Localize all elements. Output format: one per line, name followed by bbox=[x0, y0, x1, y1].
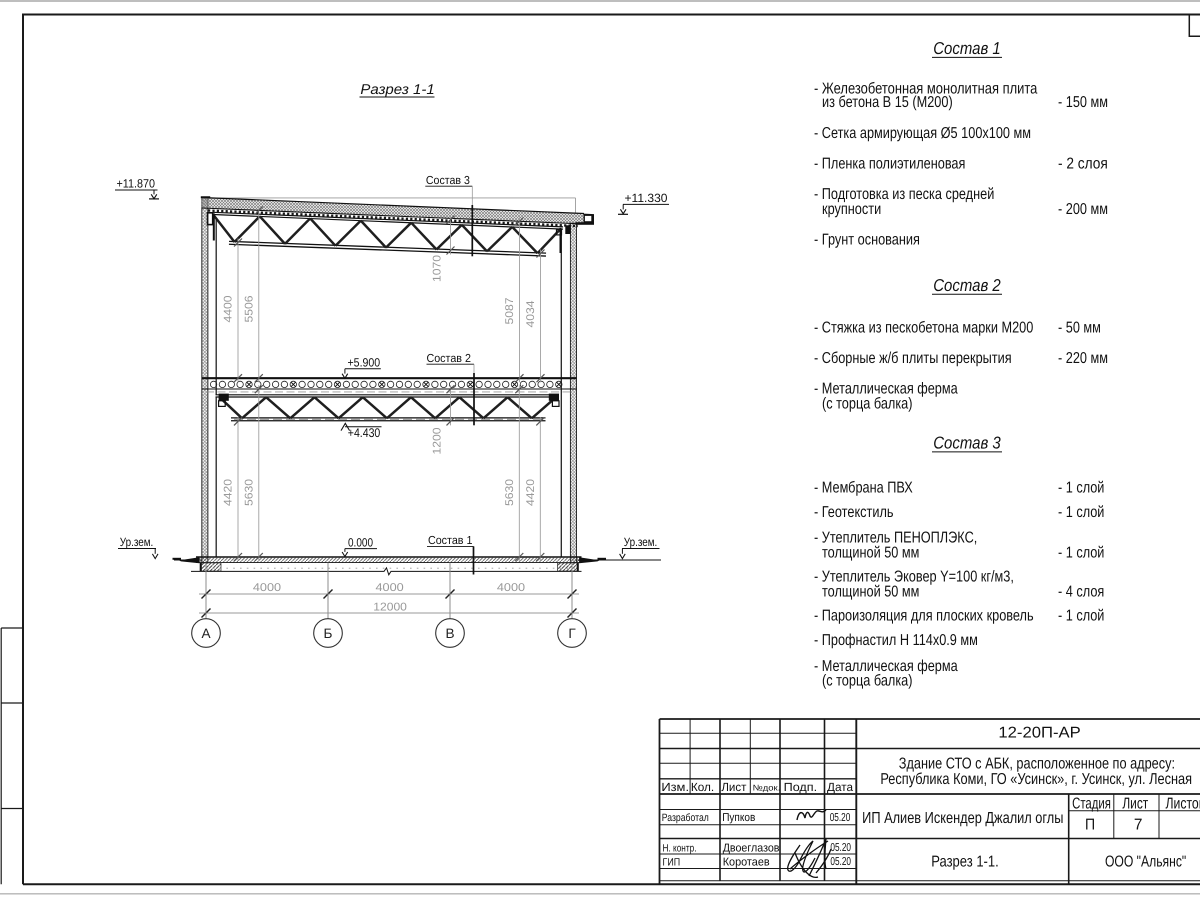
svg-text:4000: 4000 bbox=[497, 582, 525, 594]
svg-text:12-20П-АР: 12-20П-АР bbox=[998, 725, 1080, 742]
svg-text:Состав 1: Состав 1 bbox=[933, 38, 1001, 58]
svg-text:- 4 слоя: - 4 слоя bbox=[1058, 583, 1104, 600]
svg-text:- Пароизоляция для плоских кро: - Пароизоляция для плоских кровель bbox=[814, 608, 1034, 625]
svg-text:- Профнастил Н 114х0.9 мм: - Профнастил Н 114х0.9 мм bbox=[814, 632, 978, 649]
svg-text:+11.330: +11.330 bbox=[625, 191, 668, 205]
svg-text:5630: 5630 bbox=[504, 479, 516, 506]
svg-text:Б: Б bbox=[324, 626, 333, 641]
svg-text:- Пленка полиэтиленовая: - Пленка полиэтиленовая bbox=[814, 155, 965, 172]
svg-text:Состав 3: Состав 3 bbox=[426, 174, 470, 187]
svg-text:Состав 2: Состав 2 bbox=[426, 352, 471, 365]
svg-text:Изм.: Изм. bbox=[661, 780, 689, 794]
svg-text:Н. контр.: Н. контр. bbox=[663, 843, 697, 855]
svg-text:Кол.: Кол. bbox=[691, 780, 714, 794]
svg-text:5087: 5087 bbox=[504, 298, 516, 325]
svg-text:(с торца балка): (с торца балка) bbox=[822, 673, 913, 690]
svg-text:- Стяжка из пескобетона марки: - Стяжка из пескобетона марки М200 bbox=[814, 320, 1033, 337]
svg-text:Республика Коми, ГО «Усинск»,: Республика Коми, ГО «Усинск», г. Усинск,… bbox=[880, 771, 1192, 788]
svg-text:(с торца балка): (с торца балка) bbox=[822, 395, 913, 412]
svg-text:Двоеглазов: Двоеглазов bbox=[723, 843, 780, 855]
svg-text:А: А bbox=[201, 626, 211, 641]
svg-text:Дата: Дата bbox=[827, 780, 853, 794]
svg-text:толщиной 50 мм: толщиной 50 мм bbox=[822, 583, 919, 600]
svg-text:Пупков: Пупков bbox=[722, 812, 755, 824]
svg-text:5506: 5506 bbox=[243, 296, 255, 323]
svg-text:+4.430: +4.430 bbox=[348, 426, 381, 440]
svg-text:- 2 слоя: - 2 слоя bbox=[1058, 155, 1108, 172]
svg-text:- 200 мм: - 200 мм bbox=[1058, 201, 1108, 218]
svg-text:+11.870: +11.870 bbox=[117, 177, 156, 191]
svg-text:05.20: 05.20 bbox=[830, 856, 851, 868]
svg-text:0.000: 0.000 bbox=[348, 535, 373, 549]
svg-text:Подп.: Подп. bbox=[784, 780, 818, 794]
svg-text:толщиной 50 мм: толщиной 50 мм bbox=[822, 544, 919, 561]
svg-text:П: П bbox=[1085, 817, 1095, 834]
svg-text:Коротаев: Коротаев bbox=[723, 857, 770, 869]
svg-text:- Геотекстиль: - Геотекстиль bbox=[814, 504, 894, 521]
svg-text:- Мембрана ПВХ: - Мембрана ПВХ bbox=[814, 480, 913, 497]
svg-text:4000: 4000 bbox=[253, 582, 281, 594]
svg-text:Лист: Лист bbox=[1122, 796, 1148, 813]
svg-text:Разрез 1-1.: Разрез 1-1. bbox=[931, 854, 999, 871]
svg-text:- 1 слой: - 1 слой bbox=[1058, 504, 1104, 521]
svg-text:Стадия: Стадия bbox=[1072, 796, 1111, 813]
svg-text:7: 7 bbox=[1134, 817, 1143, 834]
svg-text:Состав 3: Состав 3 bbox=[933, 433, 1001, 453]
svg-text:из бетона В 15 (М200): из бетона В 15 (М200) bbox=[822, 94, 953, 111]
svg-text:Ур.зем.: Ур.зем. bbox=[624, 535, 658, 549]
svg-text:ГИП: ГИП bbox=[663, 857, 681, 869]
svg-text:- 150 мм: - 150 мм bbox=[1058, 94, 1108, 111]
svg-text:Разрез 1-1: Разрез 1-1 bbox=[360, 82, 434, 98]
svg-text:- Сетка армирующая Ø5 100х100: - Сетка армирующая Ø5 100х100 мм bbox=[814, 125, 1031, 142]
svg-text:- 1 слой: - 1 слой bbox=[1058, 480, 1104, 497]
svg-text:4000: 4000 bbox=[376, 582, 404, 594]
svg-text:1070: 1070 bbox=[432, 255, 444, 282]
svg-text:4400: 4400 bbox=[223, 296, 235, 323]
svg-text:1200: 1200 bbox=[432, 428, 444, 455]
svg-text:Листов: Листов bbox=[1166, 796, 1200, 813]
svg-text:5630: 5630 bbox=[243, 479, 255, 506]
svg-text:4420: 4420 bbox=[525, 479, 537, 506]
svg-text:ООО "Альянс": ООО "Альянс" bbox=[1105, 854, 1186, 871]
svg-text:Разработал: Разработал bbox=[662, 812, 709, 824]
svg-text:Ур.зем.: Ур.зем. bbox=[120, 535, 154, 549]
svg-text:№док.: №док. bbox=[753, 783, 781, 793]
svg-text:12000: 12000 bbox=[373, 601, 407, 613]
svg-text:05.20: 05.20 bbox=[830, 812, 851, 824]
svg-text:05.20: 05.20 bbox=[830, 842, 851, 854]
svg-text:- 50 мм: - 50 мм bbox=[1058, 320, 1101, 337]
svg-text:крупности: крупности bbox=[822, 201, 881, 218]
svg-text:Состав 2: Состав 2 bbox=[933, 275, 1001, 295]
svg-text:- Грунт основания: - Грунт основания bbox=[814, 231, 920, 248]
svg-text:4034: 4034 bbox=[525, 301, 537, 328]
svg-text:+5.900: +5.900 bbox=[348, 355, 381, 369]
svg-text:Состав 1: Состав 1 bbox=[428, 534, 473, 547]
svg-text:Г: Г bbox=[568, 626, 576, 641]
svg-text:- 1 слой: - 1 слой bbox=[1058, 608, 1104, 625]
svg-text:- 220 мм: - 220 мм bbox=[1058, 350, 1108, 367]
svg-text:4420: 4420 bbox=[223, 479, 235, 506]
svg-text:- Сборные ж/б плиты перекрытия: - Сборные ж/б плиты перекрытия bbox=[814, 350, 1012, 367]
svg-text:В: В bbox=[445, 626, 454, 641]
svg-text:Лист: Лист bbox=[721, 780, 747, 794]
svg-text:ИП Алиев Искендер Джалил оглы: ИП Алиев Искендер Джалил оглы bbox=[862, 810, 1063, 827]
svg-text:- 1 слой: - 1 слой bbox=[1058, 544, 1104, 561]
